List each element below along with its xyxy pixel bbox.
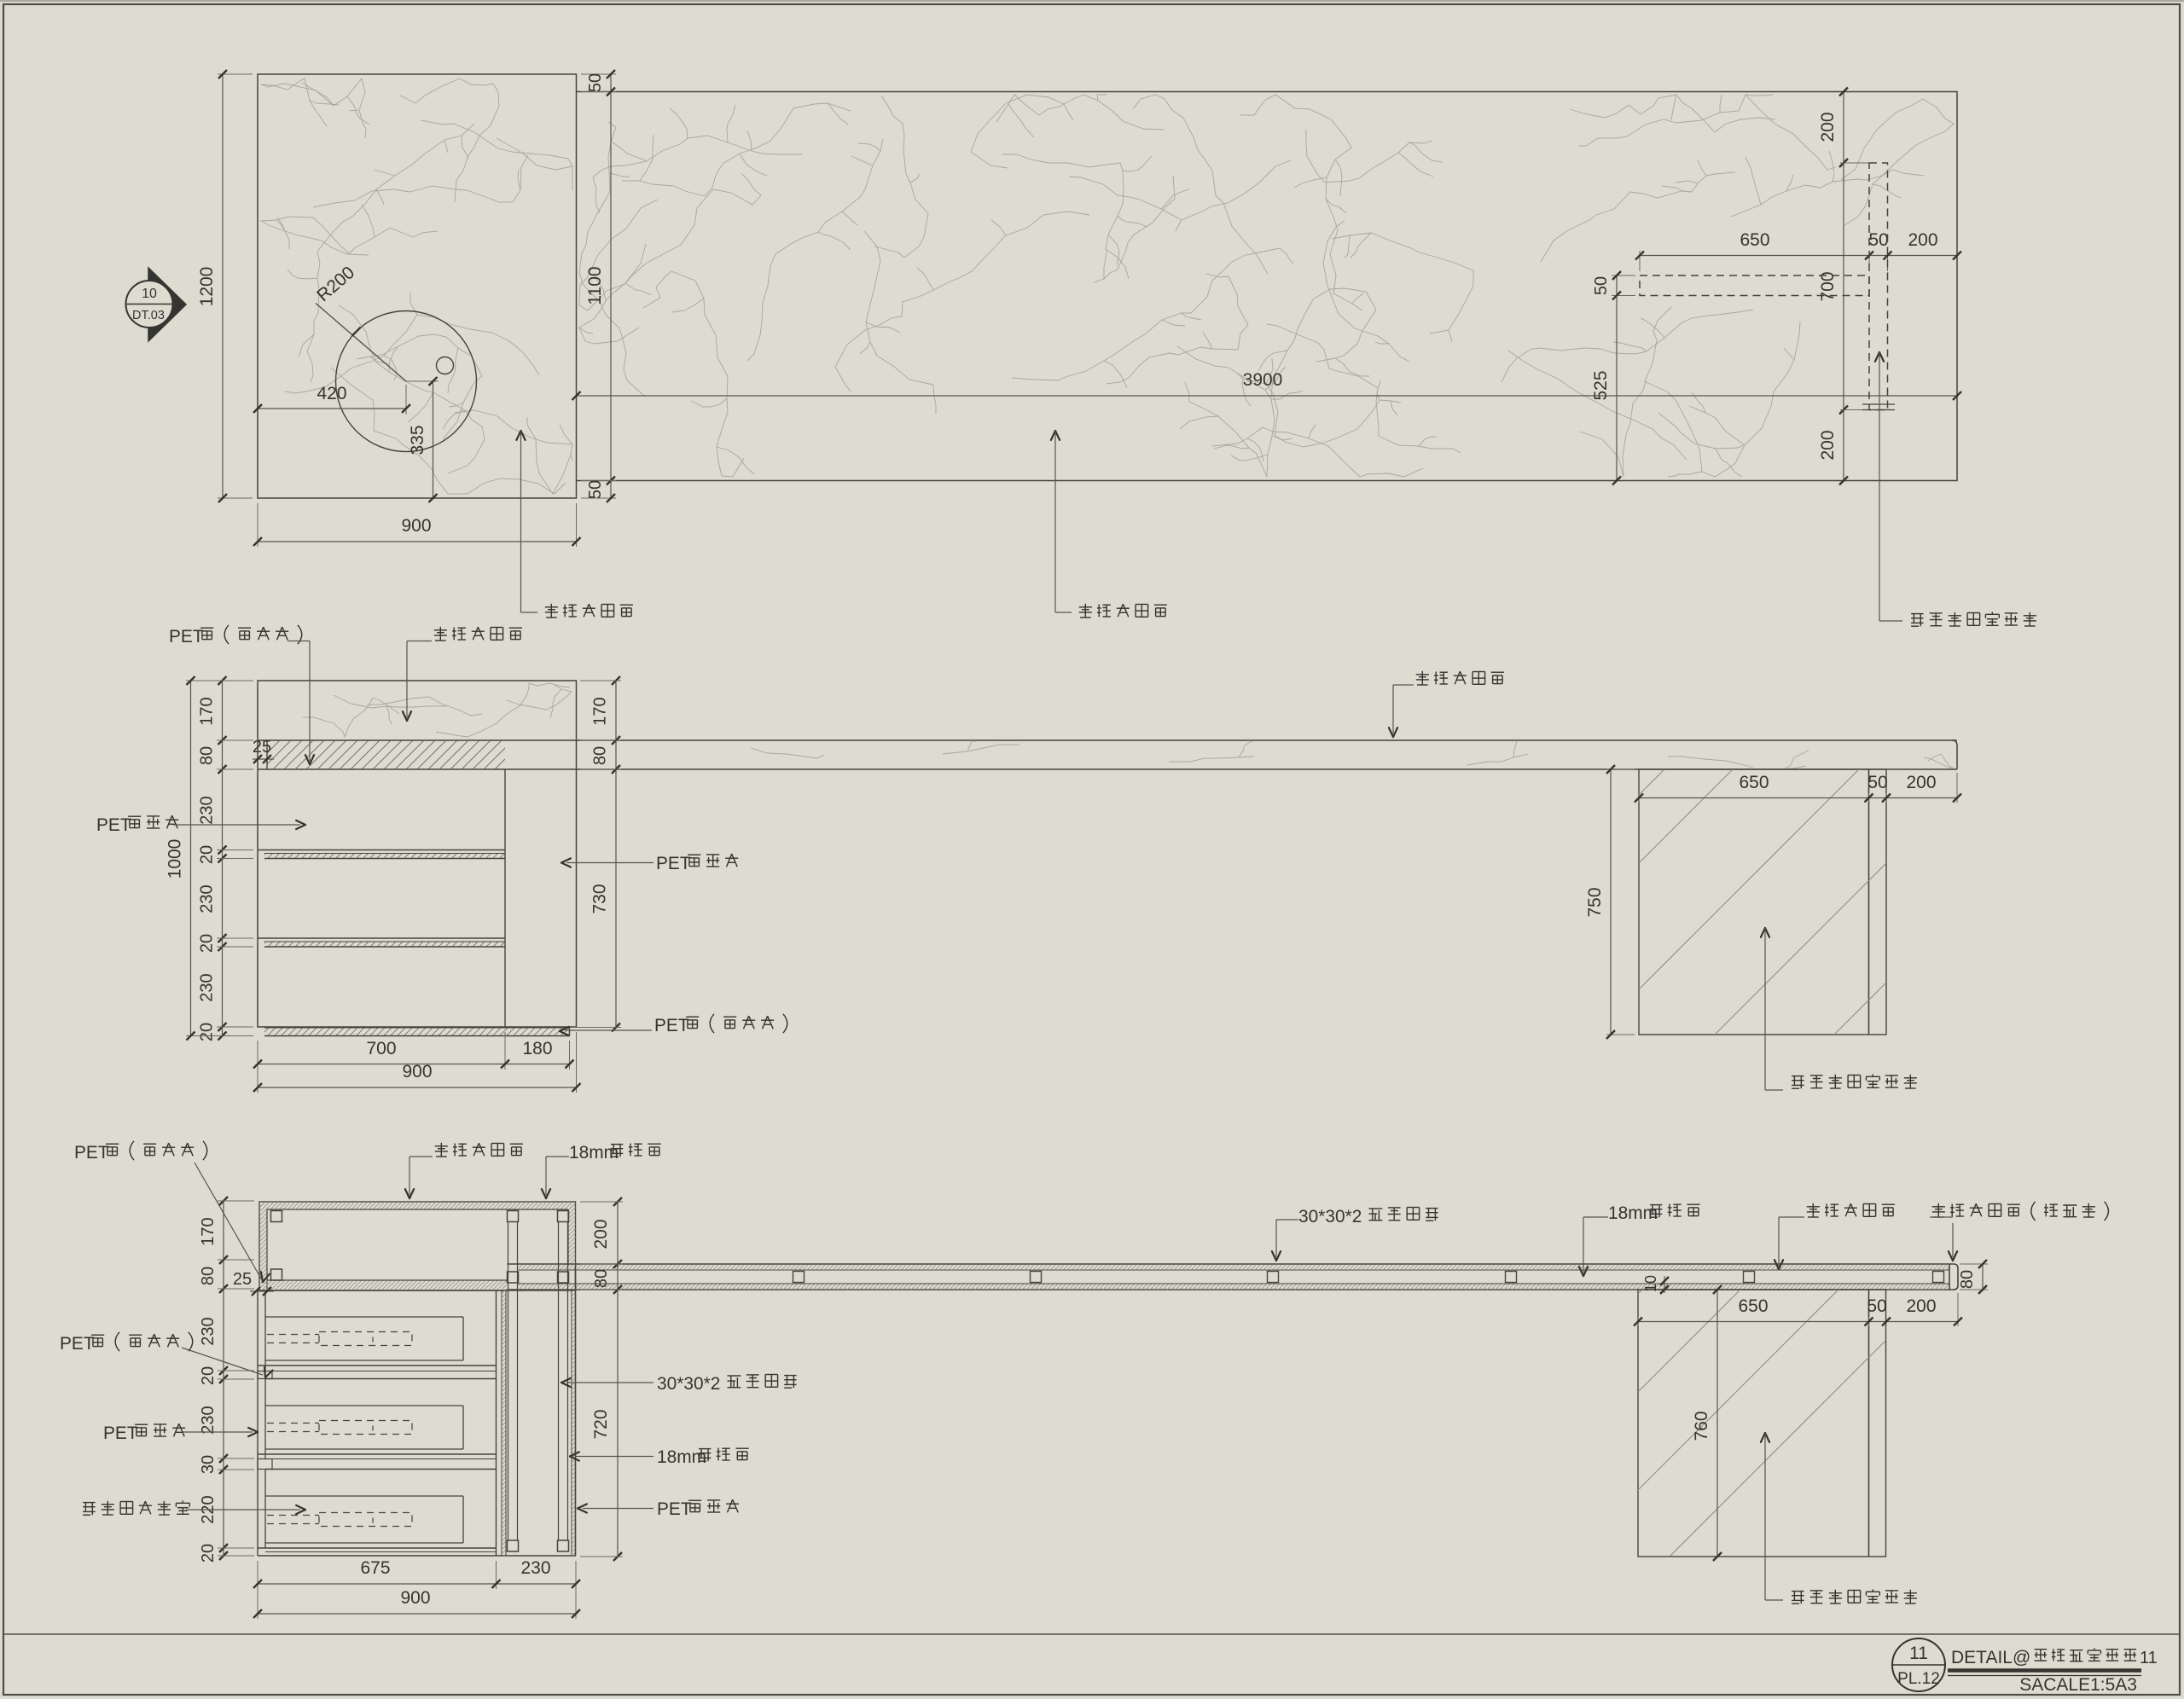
svg-text:11: 11: [1909, 1644, 1928, 1663]
svg-text:25: 25: [253, 738, 271, 757]
svg-text:PET: PET: [656, 854, 691, 873]
svg-text:30: 30: [199, 1455, 218, 1474]
svg-text:200: 200: [1818, 112, 1838, 142]
svg-text:650: 650: [1738, 1296, 1768, 1316]
svg-text:525: 525: [1591, 370, 1611, 400]
svg-text:50: 50: [1592, 276, 1611, 295]
svg-text:720: 720: [591, 1409, 611, 1439]
svg-text:700: 700: [366, 1039, 396, 1058]
svg-text:760: 760: [1692, 1411, 1711, 1441]
svg-text:1000: 1000: [166, 839, 185, 879]
svg-text:200: 200: [1906, 1296, 1936, 1316]
svg-text:200: 200: [591, 1219, 611, 1249]
svg-text:730: 730: [590, 884, 610, 913]
svg-text:750: 750: [1585, 887, 1605, 917]
svg-text:18mm: 18mm: [1608, 1203, 1658, 1223]
svg-text:18mm: 18mm: [657, 1447, 706, 1467]
svg-text:11: 11: [2140, 1649, 2158, 1667]
svg-text:DETAIL@: DETAIL@: [1951, 1648, 2030, 1667]
svg-text:230: 230: [198, 884, 217, 913]
svg-text:200: 200: [1908, 230, 1937, 250]
svg-text:20: 20: [198, 845, 217, 864]
svg-text:50: 50: [586, 480, 605, 499]
svg-text:1100: 1100: [585, 266, 605, 304]
svg-text:675: 675: [360, 1558, 390, 1578]
svg-text:420: 420: [317, 384, 346, 403]
svg-text:PET: PET: [60, 1334, 95, 1354]
svg-text:80: 80: [199, 1267, 218, 1285]
svg-text:230: 230: [199, 1406, 218, 1434]
svg-text:PET: PET: [74, 1143, 109, 1163]
svg-text:50: 50: [1868, 230, 1888, 250]
svg-text:3900: 3900: [1243, 370, 1283, 390]
svg-text:80: 80: [592, 1269, 611, 1288]
svg-text:650: 650: [1740, 230, 1769, 250]
svg-text:900: 900: [400, 1588, 430, 1608]
svg-text:20: 20: [199, 1544, 218, 1563]
svg-text:PET: PET: [96, 815, 131, 835]
svg-text:PET: PET: [654, 1016, 689, 1035]
svg-text:80: 80: [198, 746, 217, 765]
svg-text:900: 900: [402, 1062, 432, 1081]
svg-text:170: 170: [591, 697, 610, 725]
svg-text:900: 900: [401, 516, 431, 536]
svg-text:50: 50: [586, 73, 605, 92]
svg-text:PL.12: PL.12: [1897, 1670, 1940, 1688]
svg-text:230: 230: [520, 1558, 550, 1578]
svg-text:200: 200: [1906, 773, 1936, 792]
svg-text:50: 50: [1867, 1296, 1886, 1316]
svg-text:335: 335: [408, 425, 427, 455]
svg-text:650: 650: [1739, 773, 1769, 792]
svg-text:DT.03: DT.03: [132, 309, 165, 322]
svg-text:200: 200: [1818, 430, 1838, 460]
svg-text:230: 230: [198, 973, 217, 1001]
svg-text:80: 80: [591, 746, 610, 765]
svg-text:18mm: 18mm: [569, 1143, 619, 1163]
svg-text:170: 170: [198, 697, 217, 725]
svg-text:230: 230: [199, 1317, 218, 1345]
svg-text:1200: 1200: [197, 267, 217, 307]
svg-text:20: 20: [198, 934, 217, 953]
svg-text:30*30*2: 30*30*2: [1298, 1207, 1362, 1226]
svg-text:PET: PET: [169, 627, 204, 647]
svg-text:SACALE1:5A3: SACALE1:5A3: [2019, 1675, 2137, 1695]
svg-text:50: 50: [1867, 773, 1887, 792]
svg-text:230: 230: [198, 796, 217, 824]
svg-text:20: 20: [199, 1366, 218, 1385]
svg-text:25: 25: [233, 1270, 252, 1289]
svg-text:170: 170: [199, 1217, 218, 1245]
svg-text:30*30*2: 30*30*2: [657, 1374, 720, 1394]
svg-text:PET: PET: [103, 1424, 138, 1443]
svg-text:10: 10: [142, 287, 157, 301]
svg-text:10: 10: [1642, 1275, 1659, 1292]
svg-text:20: 20: [198, 1023, 217, 1041]
svg-text:PET: PET: [657, 1499, 692, 1519]
svg-text:80: 80: [1958, 1270, 1977, 1289]
svg-text:180: 180: [522, 1039, 552, 1058]
